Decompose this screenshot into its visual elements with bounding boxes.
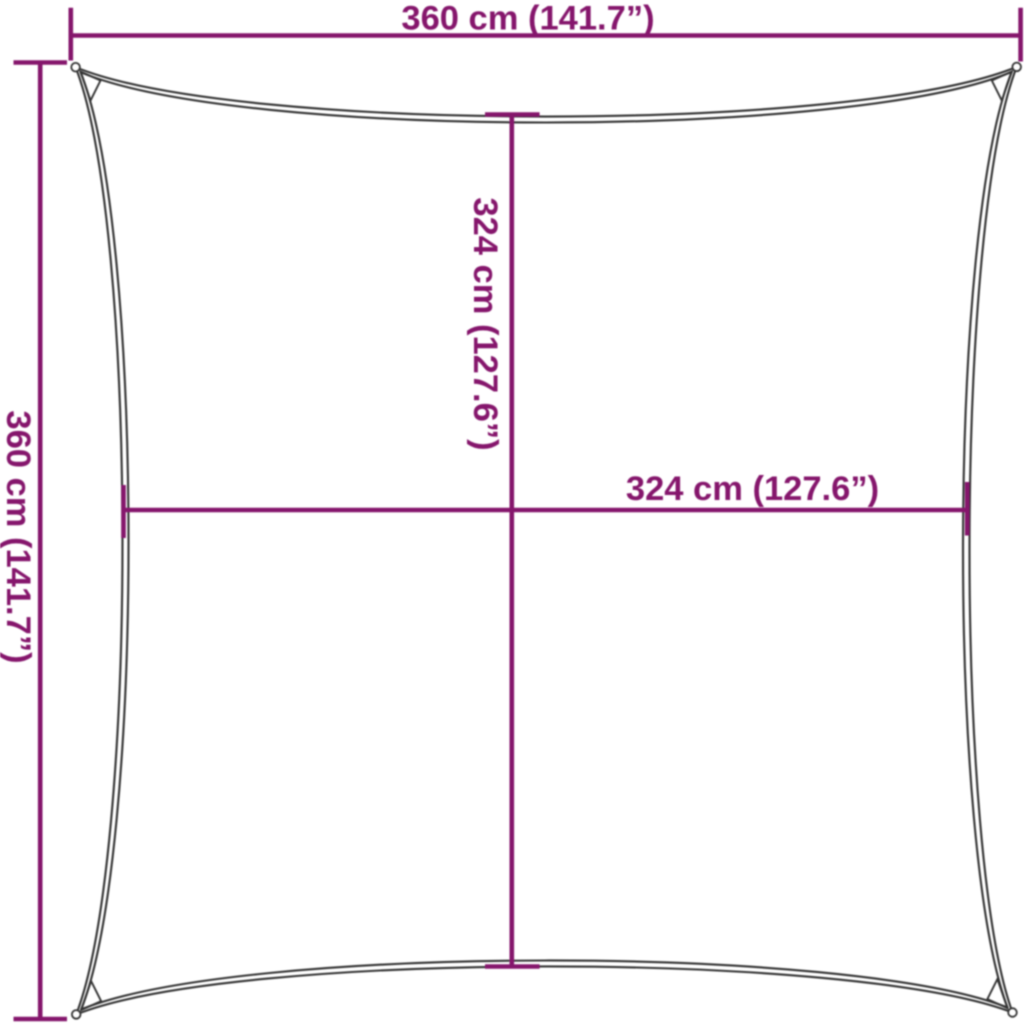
svg-text:324 cm (127.6”): 324 cm (127.6”) <box>466 197 504 450</box>
svg-text:324 cm (127.6”): 324 cm (127.6”) <box>626 470 879 508</box>
svg-text:360 cm (141.7”): 360 cm (141.7”) <box>401 0 654 38</box>
svg-text:360 cm (141.7”): 360 cm (141.7”) <box>0 410 37 663</box>
